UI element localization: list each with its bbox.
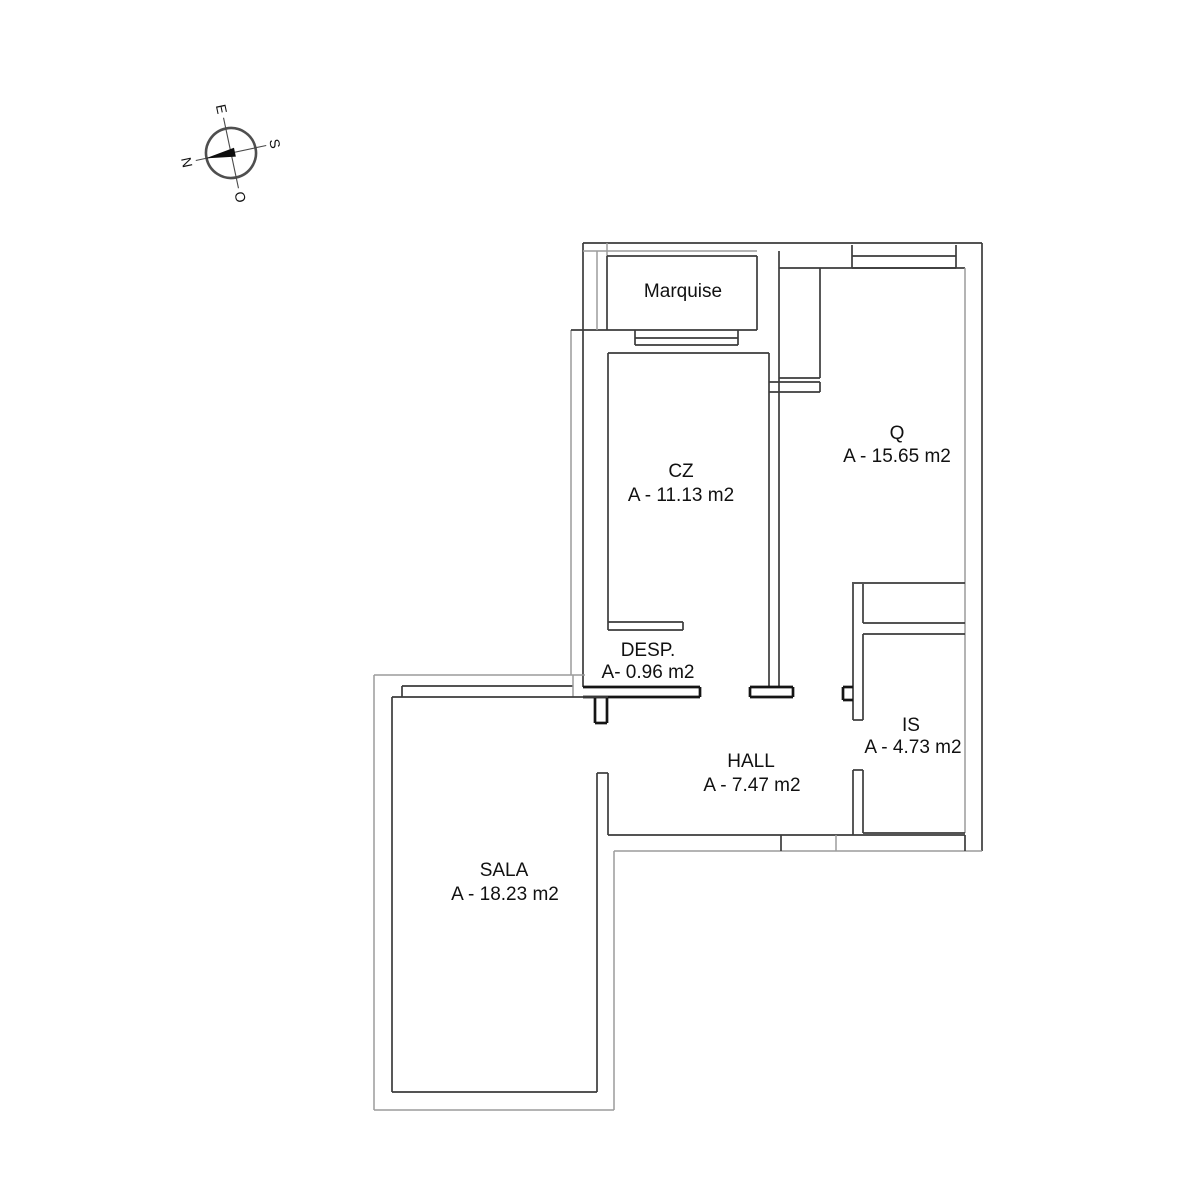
- room-label-desp: DESP.: [621, 640, 676, 661]
- room-label-marquise: Marquise: [644, 281, 722, 302]
- closet-q-west: [769, 268, 820, 392]
- room-sala: SALA A - 18.23 m2: [374, 675, 614, 1110]
- room-area-sala: A - 18.23 m2: [451, 884, 559, 905]
- room-desp: DESP. A- 0.96 m2: [602, 640, 695, 683]
- room-area-cz: A - 11.13 m2: [628, 485, 734, 506]
- room-is: IS A - 4.73 m2: [843, 584, 965, 835]
- room-hall: HALL A - 7.47 m2: [608, 751, 965, 851]
- wall-notch-is: [843, 687, 853, 700]
- room-label-q: Q: [890, 423, 905, 444]
- room-area-hall: A - 7.47 m2: [703, 775, 800, 796]
- room-label-cz: CZ: [668, 461, 694, 482]
- room-area-q: A - 15.65 m2: [843, 446, 951, 467]
- compass-label-west: O: [231, 190, 249, 204]
- hall-north-wall: [583, 687, 793, 723]
- compass-rose: N S E O: [169, 93, 294, 213]
- window-sala-north: [402, 675, 573, 697]
- floor-plan-svg: N S E O Marquise: [0, 0, 1200, 1200]
- room-label-sala: SALA: [480, 860, 529, 881]
- floor-plan-page: N S E O Marquise: [0, 0, 1200, 1200]
- room-area-desp: A- 0.96 m2: [602, 662, 695, 683]
- room-label-hall: HALL: [727, 751, 775, 772]
- closet-q-south: [863, 584, 965, 623]
- room-area-is: A - 4.73 m2: [864, 737, 961, 758]
- room-label-is: IS: [902, 715, 920, 736]
- window-cz-north: [635, 330, 738, 345]
- room-marquise: Marquise: [607, 256, 757, 345]
- compass-label-east: E: [213, 103, 231, 115]
- outer-walls: [571, 243, 982, 851]
- wall-stub-sala-door: [595, 697, 607, 723]
- window-q-north: [852, 245, 956, 268]
- compass-label-south: S: [266, 137, 284, 149]
- compass-needle: [205, 148, 236, 163]
- compass-label-north: N: [178, 156, 196, 169]
- room-cz: CZ A - 11.13 m2: [608, 353, 769, 687]
